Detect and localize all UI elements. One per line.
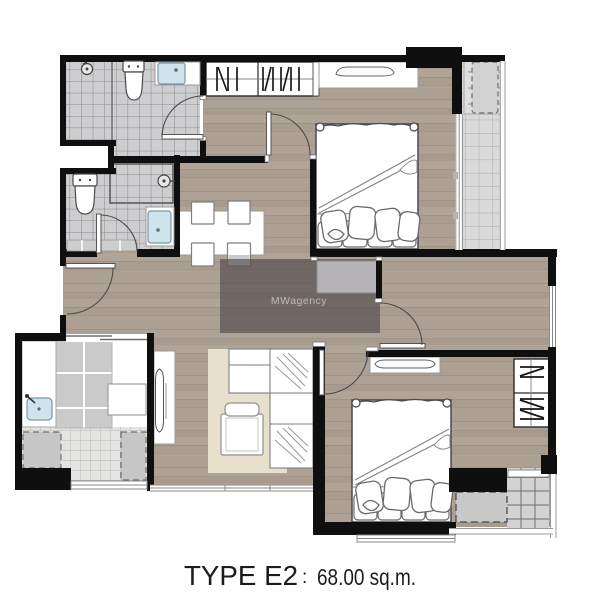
svg-text:68.00 sq.m.: 68.00 sq.m. — [317, 564, 416, 590]
svg-text:TYPE E2: TYPE E2 — [184, 560, 298, 591]
svg-text::: : — [302, 567, 307, 588]
svg-text:MWagency: MWagency — [271, 295, 327, 307]
